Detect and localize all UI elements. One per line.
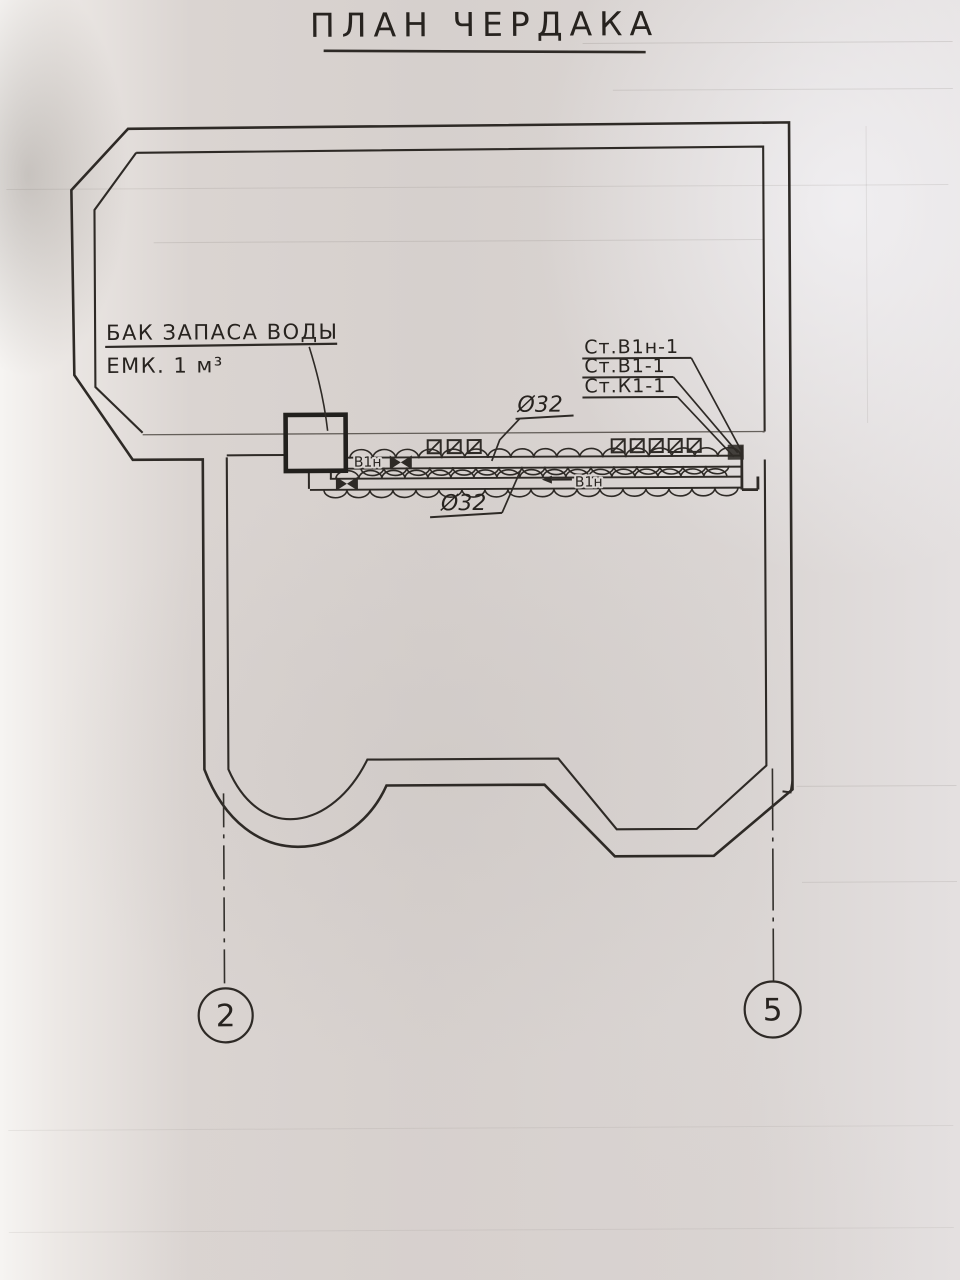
pipe-diameter-label-top: Ø32 xyxy=(516,393,562,418)
tank-leader-line xyxy=(309,347,327,431)
tank-drop-connector xyxy=(309,471,331,489)
pipe-diameter-top-leader xyxy=(492,419,520,461)
outer-wall-corner-hook xyxy=(782,780,792,792)
attic-plan-drawing: ПЛАН ЧЕРДАКА БА xyxy=(0,0,960,1280)
pipe-tag-lower: В1н xyxy=(575,474,603,490)
pipe-hanger-symbol xyxy=(468,440,481,453)
tank-label-line1: БАК ЗАПАСА ВОДЫ xyxy=(106,320,339,345)
pipe-tag-upper: В1н xyxy=(354,455,382,471)
pipe-hanger-symbol xyxy=(650,439,663,452)
axis-line-left xyxy=(224,793,225,987)
pipe-hanger-symbol xyxy=(448,440,461,453)
tank-label-line2: ЕМК. 1 м³ xyxy=(106,353,224,378)
title-underline xyxy=(324,49,646,54)
scanned-drawing-page: ПЛАН ЧЕРДАКА БА xyxy=(0,0,960,1280)
paper-scan-lines xyxy=(3,42,959,1233)
outer-wall-outline xyxy=(71,122,793,859)
pipe-diameter-label-bottom: Ø32 xyxy=(440,491,486,516)
water-tank xyxy=(286,415,346,471)
riser-leader-lines xyxy=(673,358,741,457)
axis-number-left: 2 xyxy=(216,998,236,1034)
pipe-end-bar xyxy=(742,446,758,490)
lower-pipe xyxy=(310,477,742,490)
interior-wall-line xyxy=(143,432,765,435)
axis-number-right: 5 xyxy=(763,992,783,1028)
pipe-diameter-bottom-leader xyxy=(502,470,521,513)
page-title: ПЛАН ЧЕРДАКА xyxy=(310,4,659,45)
pipe-hanger-symbol xyxy=(631,439,644,452)
axis-line-right xyxy=(772,768,773,980)
